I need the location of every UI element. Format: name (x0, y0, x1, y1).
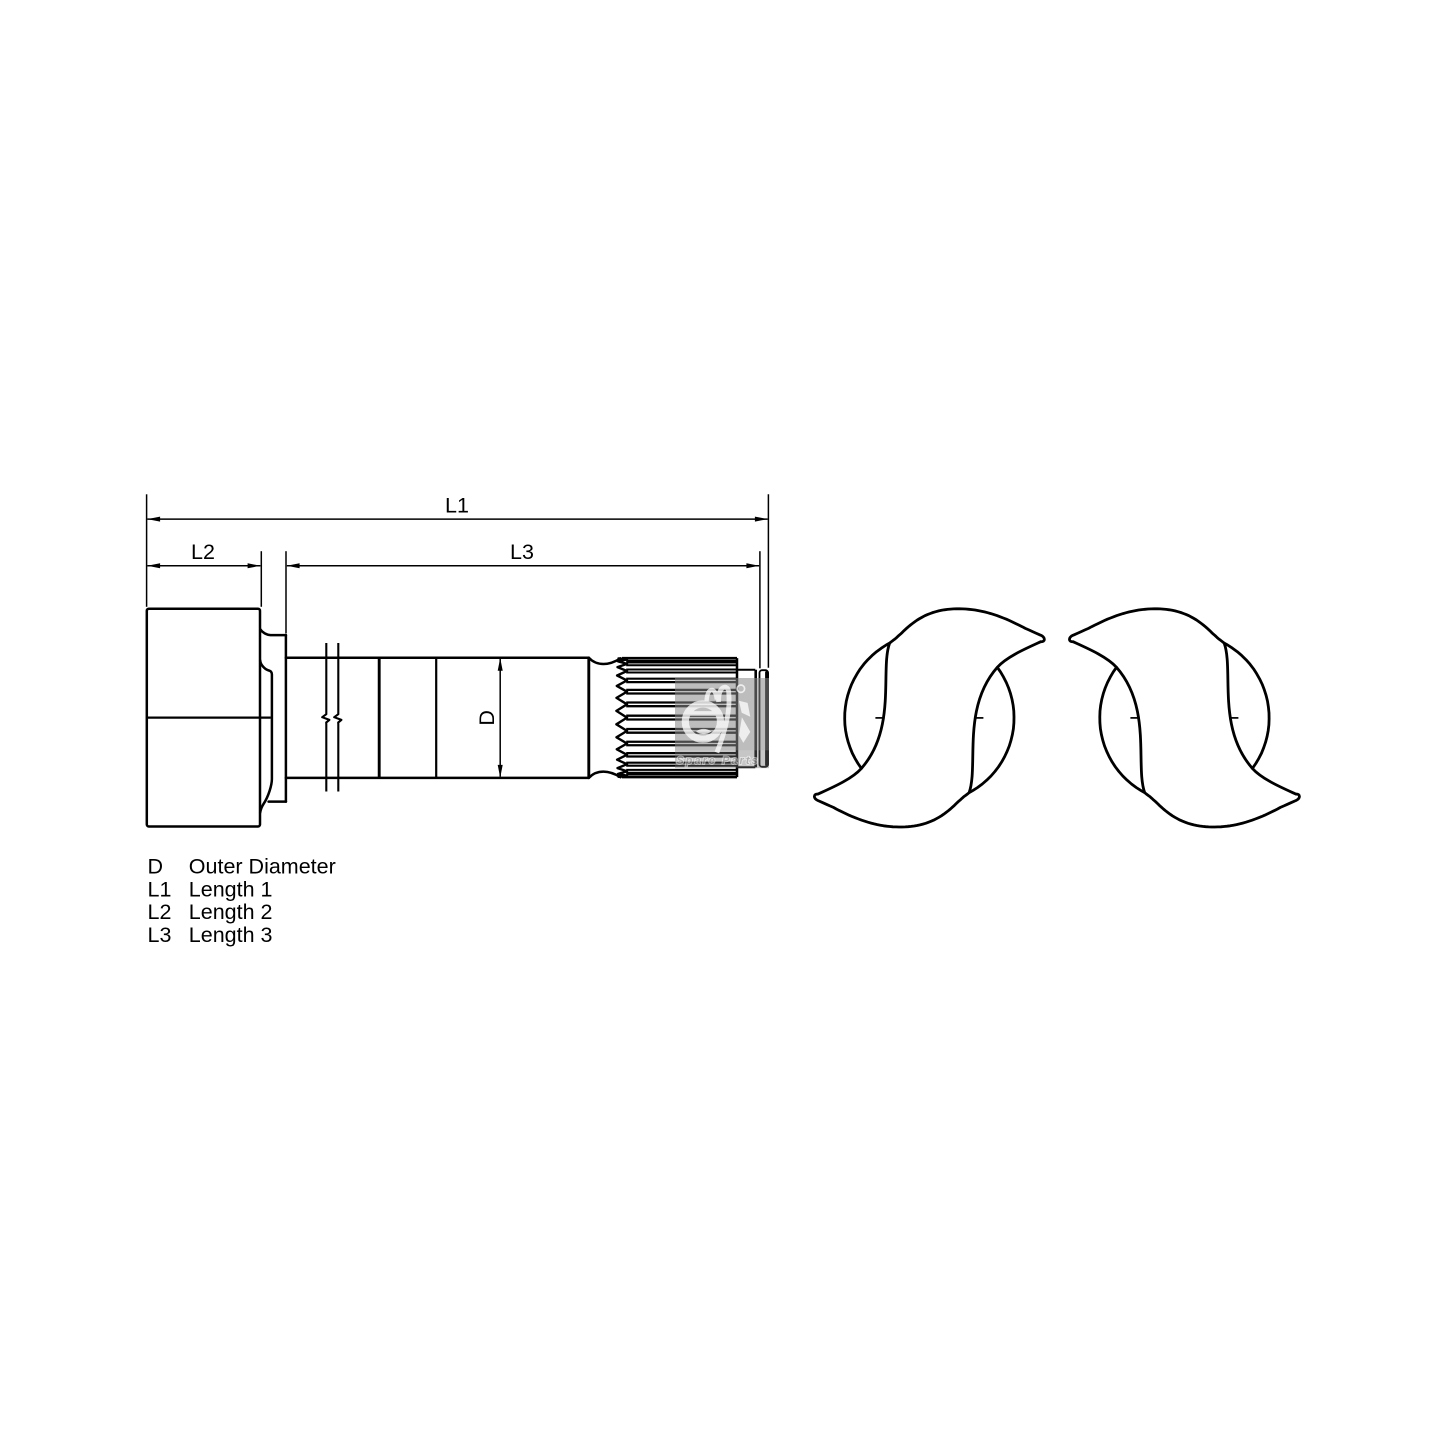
svg-text:D: D (475, 710, 499, 726)
svg-text:Spare Parts: Spare Parts (677, 755, 760, 767)
svg-text:Length 3: Length 3 (189, 923, 273, 947)
svg-text:L3: L3 (148, 923, 172, 947)
svg-text:Length 2: Length 2 (189, 900, 273, 924)
svg-text:Outer Diameter: Outer Diameter (189, 855, 336, 879)
svg-text:L2: L2 (191, 540, 215, 564)
svg-text:L2: L2 (148, 900, 172, 924)
svg-text:Length 1: Length 1 (189, 877, 273, 901)
svg-text:D: D (148, 855, 164, 879)
svg-text:L1: L1 (445, 494, 469, 518)
svg-text:L1: L1 (148, 877, 172, 901)
svg-text:L3: L3 (510, 540, 534, 564)
